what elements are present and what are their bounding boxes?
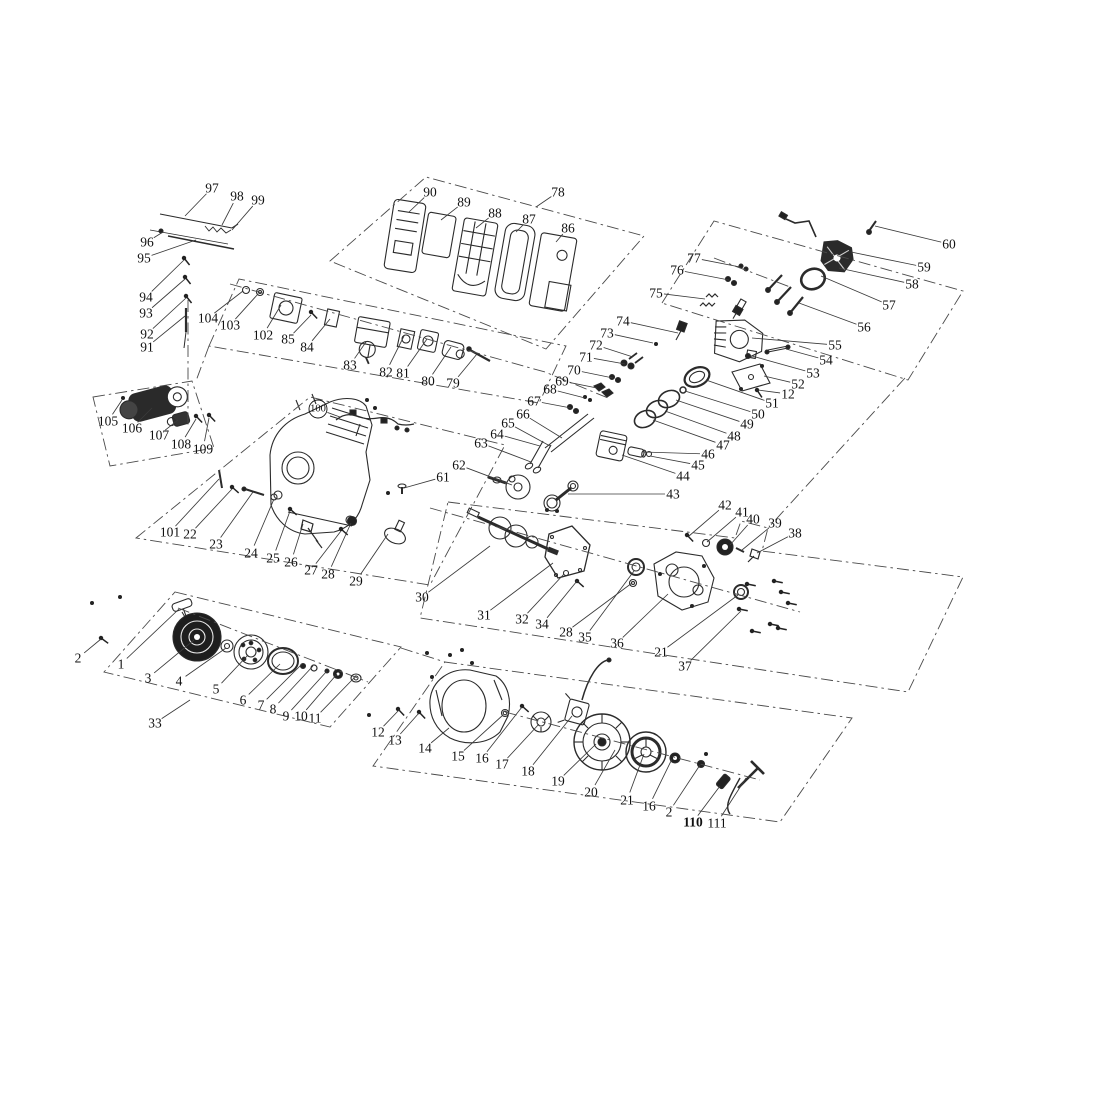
leader-line <box>667 595 738 647</box>
part-number-label: 105 <box>98 414 119 429</box>
part-number-label: 5 <box>213 682 220 697</box>
leader-line <box>152 240 196 255</box>
part-air-cleaner-gasket <box>494 222 537 302</box>
part-carb-gasket-1 <box>324 309 339 327</box>
part-number-label: 26 <box>284 555 298 570</box>
part-number-label: 11 <box>309 711 322 726</box>
part-number-label: 32 <box>515 612 529 627</box>
leader-line <box>312 319 330 341</box>
part-number-label: 27 <box>304 563 318 578</box>
part-number-label: 47 <box>716 438 730 453</box>
part-number-label: 67 <box>527 394 541 409</box>
leader-line <box>154 232 163 238</box>
part-bearing-seal <box>628 559 644 587</box>
part-breather-plate <box>732 364 770 397</box>
part-number-label: 90 <box>423 185 437 200</box>
part-air-cleaner-body <box>452 218 498 297</box>
part-number-label: 12 <box>371 725 385 740</box>
bolt-dot <box>367 713 371 717</box>
leader-line <box>408 339 427 366</box>
leader-line <box>664 294 705 299</box>
bolt-dot <box>704 752 708 756</box>
leader-line <box>390 336 404 365</box>
leader-line <box>267 305 281 328</box>
part-plug-terminal <box>716 774 731 790</box>
leader-line <box>276 511 290 550</box>
leader-line <box>851 252 916 265</box>
part-air-filter-element <box>422 212 457 258</box>
bolt-dot <box>386 491 390 495</box>
leader-line <box>162 700 190 719</box>
part-number-label: 78 <box>551 185 565 200</box>
part-number-label: 43 <box>666 487 680 502</box>
part-number-label: 37 <box>678 659 692 674</box>
leader-line <box>839 268 904 282</box>
part-kill-lever <box>779 212 816 237</box>
part-number-label: 4 <box>176 674 183 689</box>
part-number-label: 96 <box>140 235 154 250</box>
part-number-label: 53 <box>806 366 820 381</box>
part-number-label: 57 <box>882 298 896 313</box>
connector-bottom <box>401 648 445 662</box>
part-number-label: 15 <box>451 749 465 764</box>
part-number-label: 14 <box>418 741 432 756</box>
part-number-label: 94 <box>139 290 153 305</box>
part-flywheel <box>574 714 630 770</box>
leader-line <box>464 715 503 751</box>
part-number-label: 95 <box>137 251 151 266</box>
leader-line <box>673 765 700 805</box>
part-number-label: 7 <box>258 698 265 713</box>
leader-line <box>487 707 522 752</box>
part-number-label: 8 <box>270 702 277 717</box>
part-number-label: 30 <box>415 590 429 605</box>
part-tappet <box>398 484 406 494</box>
leader-line <box>564 744 596 775</box>
leader-line <box>582 372 613 378</box>
leader-line <box>428 546 490 592</box>
leader-line <box>306 674 337 710</box>
leader-line <box>757 537 788 553</box>
leader-line <box>752 356 805 371</box>
part-number-label: 17 <box>495 757 509 772</box>
part-number-label: 34 <box>535 617 549 632</box>
part-number-label: 79 <box>446 376 460 391</box>
bolt-dot <box>118 595 122 599</box>
head-inner-line <box>714 258 790 287</box>
part-number-label: 102 <box>253 328 273 343</box>
leader-line <box>691 611 741 660</box>
part-number-label: 80 <box>421 374 435 389</box>
bolt-dot <box>460 648 464 652</box>
part-number-label: 23 <box>209 537 223 552</box>
leader-line <box>786 349 818 358</box>
part-number-label: 77 <box>687 251 701 266</box>
part-air-cleaner-backplate <box>529 232 579 311</box>
part-breather-elbow <box>441 340 466 361</box>
part-number-label: 99 <box>251 193 265 208</box>
part-number-label: 2 <box>666 805 673 820</box>
leader-line <box>547 581 577 618</box>
part-number-label: 86 <box>561 221 575 236</box>
connector-left <box>196 346 209 381</box>
leader-line <box>515 427 550 446</box>
part-number-label: 2 <box>75 651 82 666</box>
bolt-dot <box>588 398 592 402</box>
part-connecting-rod <box>544 481 578 513</box>
part-ignition-coil <box>558 658 611 729</box>
leader-line <box>527 574 564 613</box>
part-number-label: 59 <box>917 260 931 275</box>
part-number-label: 106 <box>122 421 143 436</box>
part-number-label: 10 <box>294 709 308 724</box>
part-number-label: 84 <box>300 340 314 355</box>
part-head-gasket-ring <box>798 265 827 292</box>
leader-line <box>707 517 736 542</box>
part-number-label: 75 <box>649 286 663 301</box>
part-number-label: 44 <box>676 469 690 484</box>
part-cylinder-block <box>270 394 372 534</box>
leader-line <box>293 524 303 554</box>
leader-line <box>653 759 672 799</box>
part-head-bolts <box>766 275 803 315</box>
part-insulator <box>270 292 303 323</box>
part-number-label: 36 <box>610 636 624 651</box>
part-number-label: 98 <box>230 189 244 204</box>
leader-line <box>622 455 675 473</box>
leader-line <box>685 391 750 412</box>
part-number-label: 63 <box>474 436 488 451</box>
part-number-label: 82 <box>379 365 393 380</box>
leader-line <box>604 347 633 357</box>
part-starter-pulley-2 <box>626 732 666 772</box>
part-number-label: 51 <box>765 396 779 411</box>
part-spark-plug <box>730 298 747 320</box>
part-number-label: 40 <box>746 512 760 527</box>
crankcase-group-box <box>136 397 505 585</box>
leader-line <box>291 671 327 710</box>
bolt-dot <box>90 601 94 605</box>
part-number-label: 3 <box>145 671 152 686</box>
leader-line <box>409 198 424 212</box>
leader-line <box>185 194 206 216</box>
leader-line <box>175 479 219 526</box>
leader-line <box>490 563 553 610</box>
leader-line <box>278 666 313 703</box>
leader-line <box>631 323 678 333</box>
part-number-label: 21 <box>620 793 634 808</box>
part-number-label: 87 <box>522 212 536 227</box>
part-number-label: 28 <box>559 625 573 640</box>
bolt-dot <box>373 406 377 410</box>
part-number-label: 89 <box>457 195 471 210</box>
leader-line <box>400 713 419 734</box>
part-number-label: 25 <box>266 551 280 566</box>
leader-line <box>221 492 253 537</box>
leader-line <box>558 391 585 398</box>
leader-line <box>630 754 644 792</box>
part-number-label: 33 <box>148 716 162 731</box>
part-oil-cap <box>348 517 357 526</box>
leader-line <box>254 499 274 546</box>
leader-line <box>615 335 653 343</box>
bolt-dot <box>425 651 429 655</box>
leader-line <box>488 446 531 462</box>
leader-line <box>875 226 941 242</box>
flywheel-group-box <box>373 662 852 822</box>
bolt-dot <box>365 398 369 402</box>
part-number-label: 81 <box>396 366 410 381</box>
part-carburetor <box>351 316 390 366</box>
leader-line <box>650 456 690 464</box>
leader-line <box>466 468 512 485</box>
part-number-label: 93 <box>139 306 153 321</box>
leader-line <box>321 678 354 712</box>
part-number-label: 103 <box>220 318 241 333</box>
leader-line <box>507 724 539 758</box>
leader-line <box>752 338 827 344</box>
leader-line <box>530 418 562 438</box>
leader-line <box>84 639 101 653</box>
part-number-label: 19 <box>551 774 565 789</box>
part-number-label: 111 <box>707 816 726 831</box>
part-dipstick <box>382 517 412 547</box>
part-number-label: 70 <box>567 363 581 378</box>
part-number-label: 74 <box>616 314 630 329</box>
leader-line <box>542 402 571 408</box>
bolt-dot <box>654 342 658 346</box>
bolt-dot <box>430 675 434 679</box>
leader-line <box>623 594 668 637</box>
part-number-label: 58 <box>905 277 919 292</box>
part-number-label: 13 <box>388 733 402 748</box>
part-number-label: 62 <box>452 458 466 473</box>
part-number-label: 88 <box>488 206 502 221</box>
leader-line <box>384 710 399 726</box>
leader-line <box>441 207 458 220</box>
leader-line <box>316 531 341 564</box>
part-carburetor-chain <box>243 287 491 367</box>
part-number-label: 73 <box>600 326 614 341</box>
leader-line <box>594 358 625 364</box>
part-number-label: 76 <box>670 263 684 278</box>
part-number-label: 38 <box>788 526 802 541</box>
bolt-dot <box>583 395 587 399</box>
part-number-label: 56 <box>857 320 871 335</box>
leader-line <box>685 272 729 280</box>
bolt-dot <box>470 661 474 665</box>
part-number-label: 22 <box>183 527 197 542</box>
part-piston <box>596 430 628 461</box>
part-recoil-reel <box>173 613 221 661</box>
part-cover-bolt <box>867 221 876 234</box>
part-friction-ring <box>268 648 298 674</box>
part-number-label: 45 <box>691 458 705 473</box>
part-number-label: 42 <box>718 498 732 513</box>
part-number-label: 107 <box>149 428 170 443</box>
part-number-label: 16 <box>475 751 489 766</box>
part-number-label: 83 <box>343 358 357 373</box>
part-number-label: 66 <box>516 407 530 422</box>
part-exhaust-gasket <box>680 363 713 393</box>
part-carb-gasket-2 <box>397 329 414 350</box>
part-number-label: 65 <box>501 416 515 431</box>
air-cleaner-group-box <box>330 177 644 349</box>
part-number-label: 108 <box>171 437 192 452</box>
part-number-label: 29 <box>349 574 363 589</box>
part-number-label: 18 <box>521 764 535 779</box>
part-number-label: 91 <box>140 340 154 355</box>
part-number-label: 20 <box>584 785 598 800</box>
leader-line <box>327 412 340 417</box>
part-number-label: 110 <box>683 815 703 830</box>
part-crankcase-cover <box>654 552 714 610</box>
part-ratchet-guide <box>351 674 361 682</box>
leader-line <box>361 534 388 574</box>
part-number-label: 109 <box>193 442 214 457</box>
recoil-starter-group-box <box>104 592 401 727</box>
part-valve-springs <box>700 294 718 306</box>
part-number-label: 101 <box>160 525 180 540</box>
leader-line <box>232 206 253 230</box>
part-number-label: 49 <box>740 417 754 432</box>
part-valvetrain <box>524 264 748 474</box>
leader-line <box>235 294 258 319</box>
part-number-label: 97 <box>205 181 219 196</box>
part-rocker-cover <box>818 238 856 275</box>
leader-line <box>653 420 715 442</box>
part-number-label: 61 <box>436 470 450 485</box>
part-number-label: 85 <box>281 332 295 347</box>
part-flywheel-washer <box>670 753 680 763</box>
leader-line <box>294 315 311 333</box>
leader-line <box>572 583 632 627</box>
leader-line <box>214 291 243 313</box>
diagram-page: 9798999695949392919089888786781041031028… <box>0 0 1119 1119</box>
part-dowel <box>564 571 569 576</box>
part-block-fasteners <box>219 470 412 548</box>
leader-line <box>698 786 720 816</box>
leader-line <box>404 479 435 488</box>
part-fan-cover <box>430 670 510 743</box>
part-number-label: 1 <box>118 657 125 672</box>
part-number-label: 60 <box>942 237 956 252</box>
part-number-label: 39 <box>768 516 782 531</box>
leader-line <box>590 571 634 631</box>
leader-line <box>799 303 856 324</box>
diagram: 9798999695949392919089888786781041031028… <box>0 0 1119 1119</box>
part-piston-rings <box>632 387 683 431</box>
leader-line <box>195 489 232 528</box>
leader-line <box>221 655 248 683</box>
bolt-dot <box>121 396 125 400</box>
bolt-dot <box>448 653 452 657</box>
leader-line <box>570 383 597 388</box>
part-number-label: 55 <box>828 338 842 353</box>
part-crankshaft <box>467 508 558 553</box>
part-number-label: 31 <box>477 608 491 623</box>
part-number-label: 16 <box>642 799 656 814</box>
leader-line <box>689 510 719 536</box>
leader-line <box>533 716 572 765</box>
part-wiring-harness <box>336 410 414 436</box>
leader-line <box>821 276 882 302</box>
leader-line <box>536 197 551 207</box>
part-number-label: 54 <box>819 353 833 368</box>
part-breather-flag <box>676 321 687 340</box>
leader-line <box>222 203 233 225</box>
part-plug-wire <box>728 778 740 814</box>
part-number-label: 9 <box>283 709 290 724</box>
leader-line <box>153 316 185 342</box>
part-air-cleaner-cover <box>384 199 427 273</box>
leader-line <box>152 260 184 291</box>
part-oil-tube <box>219 470 222 488</box>
part-number-label: 21 <box>654 645 668 660</box>
part-number-label: 24 <box>244 546 258 561</box>
part-number-label: 35 <box>578 630 592 645</box>
part-number-label: 100 <box>310 404 326 415</box>
part-number-label: 28 <box>321 567 335 582</box>
leader-line <box>758 390 780 393</box>
part-number-label: 12 <box>781 387 795 402</box>
part-number-label: 104 <box>198 311 219 326</box>
part-number-label: 6 <box>240 693 247 708</box>
